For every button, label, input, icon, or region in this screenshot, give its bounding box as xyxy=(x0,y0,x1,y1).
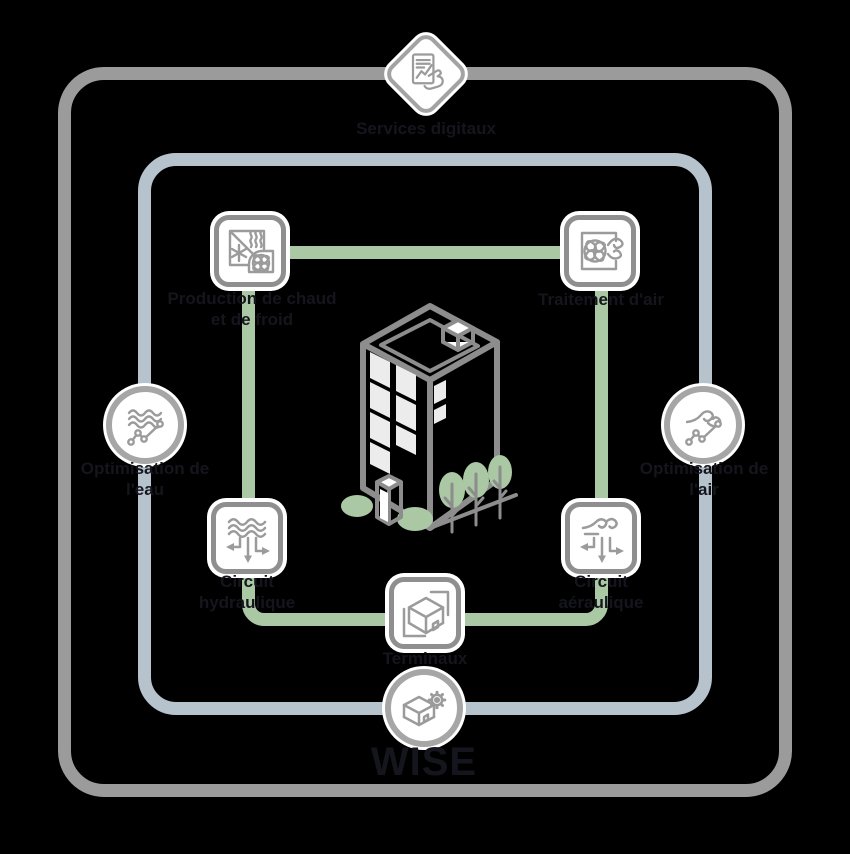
optimisation-eau-node xyxy=(106,386,184,464)
label-text: Terminaux xyxy=(383,649,468,668)
label-circuit-aeraulique: Circuit aéraulique xyxy=(558,571,643,613)
label-text: WISE xyxy=(371,740,477,784)
label-production-chaud-froid: Production de chaud et de froid xyxy=(167,288,336,330)
optimisation-air-node xyxy=(664,386,742,464)
label-text: l'eau xyxy=(126,480,164,499)
label-text: et de froid xyxy=(211,310,293,329)
production-chaud-froid-node xyxy=(214,215,286,287)
circuit-hydraulique-node xyxy=(211,502,283,574)
document-hand-icon xyxy=(400,48,452,100)
label-text: Traitement d'air xyxy=(538,290,664,309)
label-services-digitaux: Services digitaux xyxy=(356,118,496,139)
label-text: Circuit xyxy=(574,572,628,591)
building-illustration xyxy=(330,292,530,542)
water-optimization-icon xyxy=(117,397,173,453)
air-circuit-icon xyxy=(573,510,629,566)
air-optimization-icon xyxy=(675,397,731,453)
label-text: Optimisation de xyxy=(81,459,209,478)
terminaux-node xyxy=(389,577,461,649)
label-traitement-air: Traitement d'air xyxy=(538,289,664,310)
heating-cooling-icon xyxy=(222,223,278,279)
label-text: l'air xyxy=(689,480,719,499)
label-terminaux: Terminaux xyxy=(383,648,468,669)
label-text: Optimisation de xyxy=(640,459,768,478)
label-text: Production de chaud xyxy=(167,289,336,308)
label-text: hydraulique xyxy=(199,593,295,612)
air-handling-fan-icon xyxy=(572,223,628,279)
terminal-unit-icon xyxy=(397,585,453,641)
hydraulic-circuit-icon xyxy=(219,510,275,566)
traitement-air-node xyxy=(564,215,636,287)
label-text: aéraulique xyxy=(558,593,643,612)
wise-system-diagram: Services digitaux Production de chaud et… xyxy=(0,0,850,854)
label-optimisation-air: Optimisation de l'air xyxy=(640,458,768,500)
label-optimisation-eau: Optimisation de l'eau xyxy=(81,458,209,500)
circuit-aeraulique-node xyxy=(565,502,637,574)
wise-box-gear-icon xyxy=(396,680,452,736)
entrance-door xyxy=(380,489,388,522)
label-text: Services digitaux xyxy=(356,119,496,138)
wise-node xyxy=(385,669,463,747)
label-wise: WISE xyxy=(371,740,477,784)
label-text: Circuit xyxy=(220,572,274,591)
label-circuit-hydraulique: Circuit hydraulique xyxy=(199,571,295,613)
